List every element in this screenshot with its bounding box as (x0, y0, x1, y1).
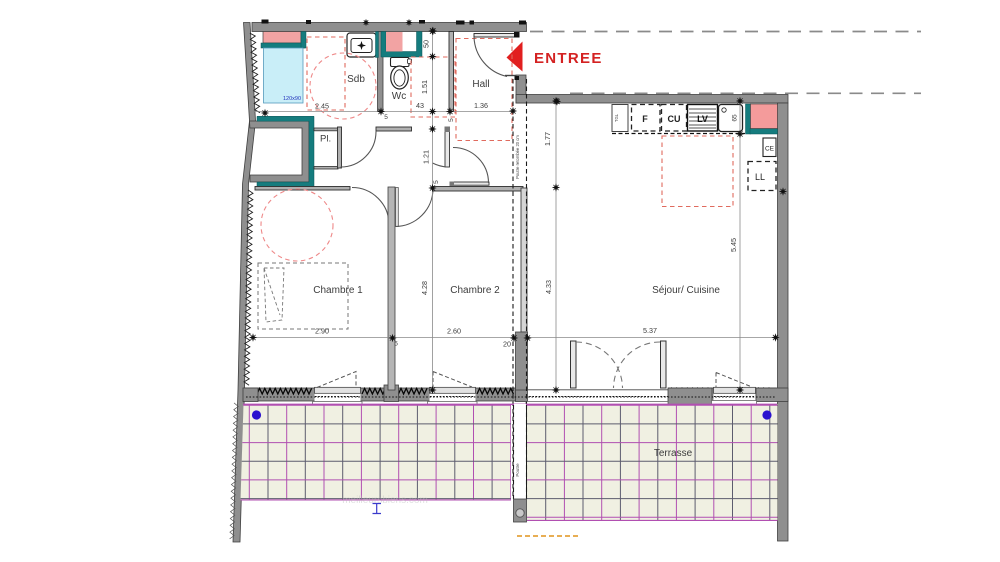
svg-text:5.37: 5.37 (643, 326, 657, 335)
svg-text:F: F (642, 114, 648, 124)
svg-text:Hall: Hall (472, 79, 489, 90)
svg-text:5: 5 (448, 118, 455, 122)
svg-text:1.77: 1.77 (543, 132, 552, 146)
svg-text:4.33: 4.33 (544, 280, 553, 294)
svg-text:5.45: 5.45 (729, 238, 738, 252)
svg-text:Poutre retombée 20 cm: Poutre retombée 20 cm (515, 135, 520, 179)
svg-text:2.90: 2.90 (315, 327, 329, 336)
svg-text:meilleursbiens.com: meilleursbiens.com (342, 495, 428, 506)
svg-text:CE: CE (765, 146, 775, 153)
svg-text:Sdb: Sdb (347, 74, 365, 85)
svg-text:TGL: TGL (614, 113, 619, 122)
svg-text:120x90: 120x90 (283, 96, 301, 102)
svg-text:LL: LL (755, 172, 765, 182)
svg-text:1.36: 1.36 (474, 101, 488, 110)
svg-text:5: 5 (433, 180, 440, 184)
svg-text:ENTREE: ENTREE (534, 50, 603, 67)
svg-text:Chambre 2: Chambre 2 (450, 285, 500, 296)
svg-text:Séjour/ Cuisine: Séjour/ Cuisine (652, 285, 720, 296)
svg-text:65: 65 (732, 114, 739, 122)
svg-text:LV: LV (697, 114, 708, 124)
svg-text:20: 20 (503, 340, 511, 349)
svg-text:1.21: 1.21 (422, 150, 431, 164)
svg-text:Terrasse: Terrasse (654, 448, 693, 459)
svg-text:1.51: 1.51 (420, 80, 429, 94)
svg-text:2.60: 2.60 (447, 327, 461, 336)
svg-text:4.28: 4.28 (420, 281, 429, 295)
svg-text:2.45: 2.45 (315, 102, 329, 111)
svg-text:43: 43 (416, 101, 424, 110)
svg-text:50: 50 (422, 40, 431, 48)
svg-text:Chambre 1: Chambre 1 (313, 285, 363, 296)
svg-text:5: 5 (384, 114, 388, 121)
svg-text:CU: CU (668, 114, 681, 124)
svg-text:Pl.: Pl. (320, 134, 331, 145)
svg-text:Wc: Wc (392, 91, 406, 102)
svg-text:5: 5 (394, 341, 398, 348)
svg-text:Poutre: Poutre (515, 463, 520, 477)
